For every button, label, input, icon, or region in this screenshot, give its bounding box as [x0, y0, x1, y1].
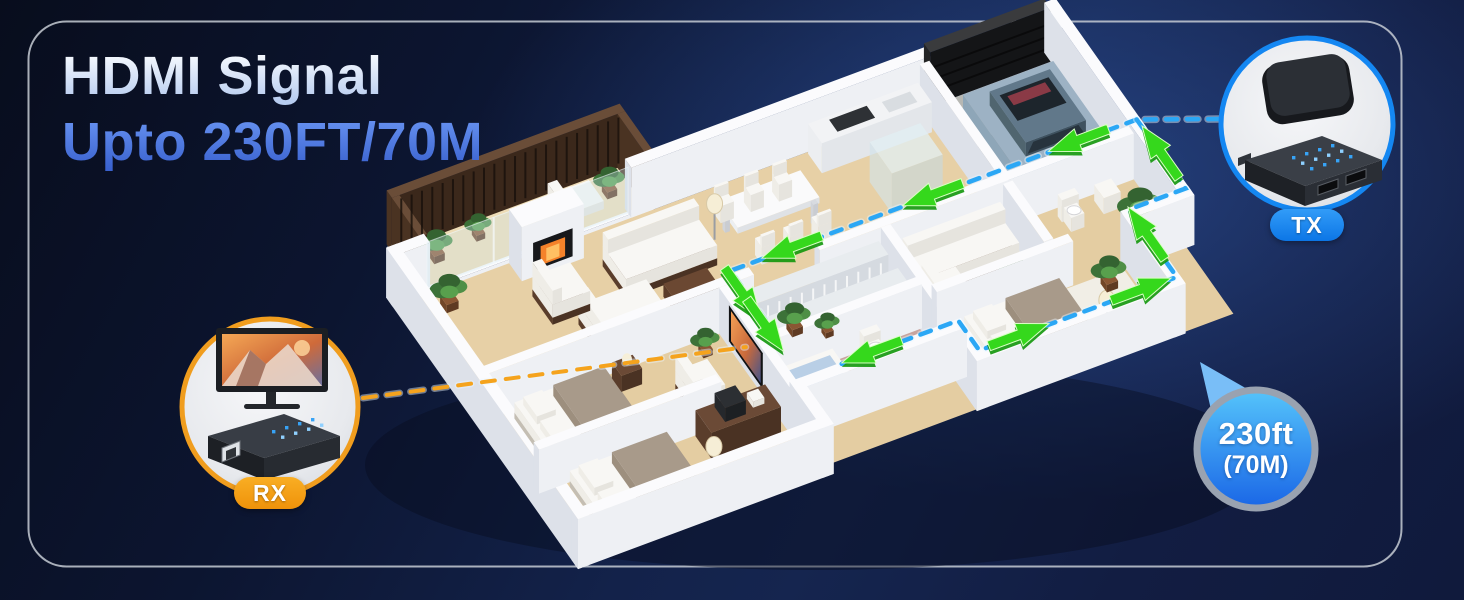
- tx-inset-circle: [1221, 38, 1393, 210]
- rx-label-badge: RX: [234, 477, 306, 509]
- house-floorplan: [365, 0, 1265, 570]
- headline-line1: HDMI Signal: [62, 46, 483, 106]
- rx-inset-circle: [182, 319, 358, 495]
- distance-meters: (70M): [1196, 451, 1316, 479]
- distance-feet: 230ft: [1196, 417, 1316, 451]
- tx-label-badge: TX: [1270, 209, 1344, 241]
- rx-label: RX: [253, 480, 287, 507]
- headline-line2: Upto 230FT/70M: [62, 112, 483, 172]
- headline: HDMI Signal Upto 230FT/70M: [62, 46, 483, 172]
- promo-banner: HDMI Signal Upto 230FT/70M TX RX 230ft (…: [0, 0, 1464, 600]
- tx-label: TX: [1291, 212, 1322, 239]
- distance-badge-text: 230ft (70M): [1196, 417, 1316, 479]
